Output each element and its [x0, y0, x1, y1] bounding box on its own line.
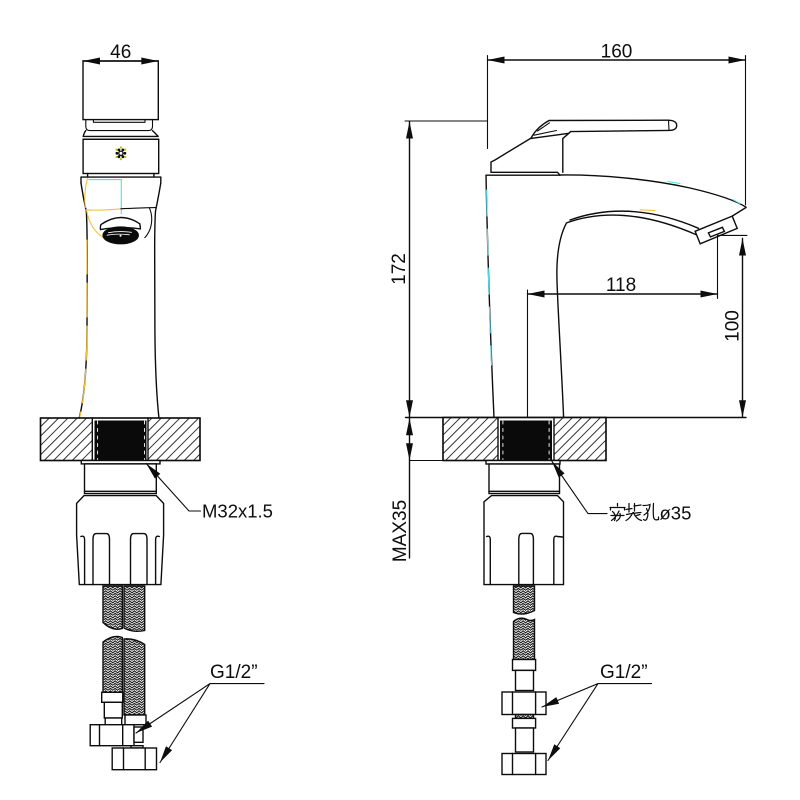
svg-text:46: 46 — [110, 42, 131, 63]
svg-text:G1/2”: G1/2” — [600, 662, 648, 683]
svg-text:160: 160 — [601, 42, 633, 63]
svg-text:G1/2”: G1/2” — [210, 662, 258, 683]
svg-text:118: 118 — [606, 275, 636, 296]
svg-text:MAX35: MAX35 — [390, 500, 411, 562]
svg-text:ø35: ø35 — [660, 503, 692, 524]
svg-text:172: 172 — [389, 253, 410, 285]
svg-text:100: 100 — [723, 310, 744, 342]
svg-text:M32x1.5: M32x1.5 — [202, 501, 273, 522]
